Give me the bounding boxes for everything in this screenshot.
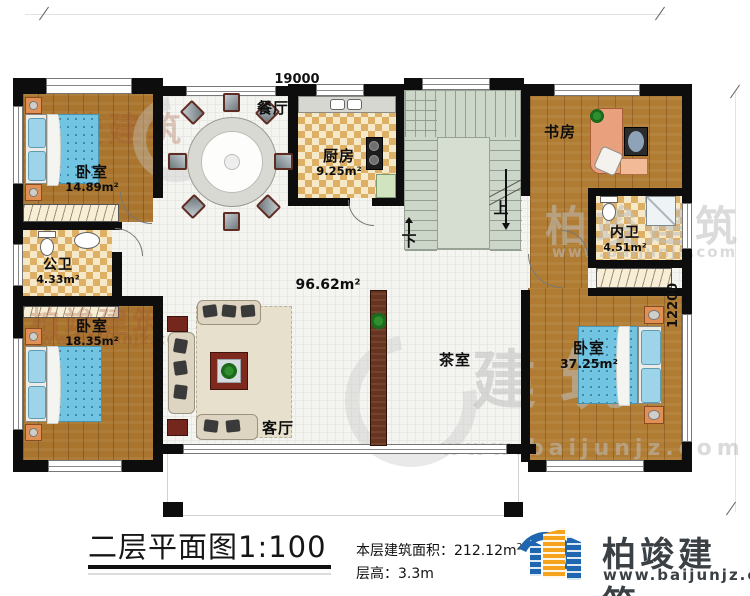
company-logo-icon <box>514 524 596 592</box>
window <box>48 460 122 472</box>
stair-treads <box>405 91 437 251</box>
window <box>546 460 644 472</box>
balcony-column <box>504 502 523 517</box>
company-website: www.baijunjz.com <box>603 566 750 584</box>
title-underline <box>88 565 331 569</box>
room-label-living: 客厅 <box>252 420 304 437</box>
window <box>682 314 692 442</box>
toilet <box>600 196 618 203</box>
room-area: 4.33m² <box>22 274 94 286</box>
room-name: 茶室 <box>424 352 486 369</box>
toilet <box>38 231 56 238</box>
staircase <box>404 90 521 250</box>
wardrobe <box>23 204 119 222</box>
logo-building <box>543 528 565 578</box>
wall <box>153 78 163 198</box>
room-label-study: 书房 <box>530 124 590 141</box>
wall <box>13 222 122 230</box>
wall <box>13 296 163 306</box>
window <box>682 203 692 249</box>
kitchen-sink <box>330 99 345 110</box>
stair-arrowhead-icon <box>502 223 510 230</box>
sheet-guide-right <box>735 92 736 512</box>
balcony-column <box>163 502 183 517</box>
nightstand <box>25 328 42 345</box>
stair-up-label: 上 <box>490 200 512 217</box>
room-label-dining: 餐厅 <box>243 100 303 117</box>
pillow <box>28 350 46 383</box>
sofa-cushion <box>173 360 188 376</box>
room-area: 18.35m² <box>52 335 132 348</box>
room-label-bedroom-right: 卧室 37.25m² <box>544 340 634 371</box>
wall <box>153 296 163 472</box>
room-name: 公卫 <box>22 258 94 274</box>
window <box>46 78 132 94</box>
wall <box>521 290 530 462</box>
wall <box>112 252 122 298</box>
room-name: 卧室 <box>52 164 132 181</box>
room-area: 9.25m² <box>300 165 378 178</box>
wall <box>588 188 692 196</box>
stats-height-value: 3.3m <box>398 566 434 582</box>
sofa-cushion <box>173 338 188 354</box>
bed-sheet <box>47 346 61 424</box>
stats-height-label: 层高： <box>356 566 398 582</box>
window <box>554 84 640 96</box>
room-name: 卧室 <box>544 340 634 357</box>
room-name: 卧室 <box>52 318 132 335</box>
tv-cabinet <box>167 316 188 332</box>
window <box>422 78 490 90</box>
sheet-guide-top <box>25 14 665 15</box>
company-name: 柏竣建筑 <box>602 527 750 596</box>
logo-building <box>530 540 541 576</box>
dimension-top: 19000 <box>252 72 342 87</box>
pillow <box>28 386 46 419</box>
stair-direction-arrow <box>408 222 410 234</box>
room-label-public-bath: 公卫 4.33m² <box>22 258 94 286</box>
pillow <box>28 118 46 148</box>
room-label-tea-room: 茶室 <box>424 352 486 369</box>
pillow <box>641 330 661 365</box>
room-area: 4.51m² <box>590 242 660 254</box>
stats-area-value: 212.12m <box>454 543 517 559</box>
desk-return <box>620 158 648 175</box>
kitchen-sink <box>347 99 362 110</box>
chair <box>223 93 240 112</box>
stats-height-line: 层高：3.3m <box>356 563 522 586</box>
chair <box>168 153 187 170</box>
wall <box>396 84 404 206</box>
room-name: 客厅 <box>252 420 304 437</box>
nightstand <box>644 306 664 324</box>
sofa-cushion <box>241 304 256 317</box>
sofa-cushion <box>225 419 240 432</box>
sofa-cushion <box>173 384 188 399</box>
computer-monitor <box>624 127 648 156</box>
lazy-susan <box>224 154 240 170</box>
room-name: 餐厅 <box>243 100 303 117</box>
stair-arrowhead-icon <box>405 217 413 223</box>
logo-building <box>567 536 581 580</box>
sink <box>74 232 100 249</box>
chair <box>223 212 240 231</box>
nightstand <box>644 406 664 424</box>
window <box>13 106 23 184</box>
room-name: 内卫 <box>590 226 660 242</box>
sheet-title: 二层平面图1:100 <box>88 524 327 566</box>
nightstand <box>25 424 42 441</box>
sheet-stats: 本层建筑面积：212.12m2 层高：3.3m <box>356 540 522 586</box>
balcony <box>167 454 519 516</box>
shower <box>646 196 676 226</box>
title-underline-light <box>88 573 331 575</box>
sofa-cushion <box>203 419 218 433</box>
wall <box>288 198 350 206</box>
plant <box>371 312 386 330</box>
kitchen-cabinet <box>376 174 396 198</box>
nightstand <box>25 97 42 114</box>
pillow <box>641 368 661 403</box>
toilet <box>40 238 54 256</box>
plant <box>590 109 604 123</box>
sofa-cushion <box>202 304 218 318</box>
pillow <box>28 151 46 181</box>
room-area: 14.89m² <box>52 181 132 194</box>
dimension-right: 12200 <box>666 250 681 328</box>
room-label-kitchen: 厨房 9.25m² <box>300 148 378 178</box>
tv-cabinet <box>167 419 188 436</box>
room-label-bedroom-top-left: 卧室 14.89m² <box>52 164 132 194</box>
wardrobe <box>596 268 672 288</box>
stair-down-label: 下 <box>398 233 420 250</box>
stair-well <box>437 137 490 249</box>
window <box>183 444 507 454</box>
chair <box>274 153 293 170</box>
stats-area-line: 本层建筑面积：212.12m2 <box>356 540 522 563</box>
wall <box>521 84 530 196</box>
hall-area-label: 96.62m² <box>286 278 370 294</box>
floorplan-sheet: 柏竣建筑 柏竣建筑 www.baijunjz.com 柏竣建筑 www.baij… <box>0 0 750 596</box>
window <box>13 338 23 430</box>
room-name: 厨房 <box>300 148 378 165</box>
nightstand <box>25 184 42 201</box>
room-label-inner-bath: 内卫 4.51m² <box>590 226 660 254</box>
toilet <box>602 203 616 221</box>
room-label-bedroom-bottom-left: 卧室 18.35m² <box>52 318 132 348</box>
room-area: 37.25m² <box>544 357 634 371</box>
plant <box>221 363 237 379</box>
stats-area-label: 本层建筑面积： <box>356 543 454 559</box>
sofa-cushion <box>221 304 236 317</box>
room-name: 书房 <box>530 124 590 141</box>
